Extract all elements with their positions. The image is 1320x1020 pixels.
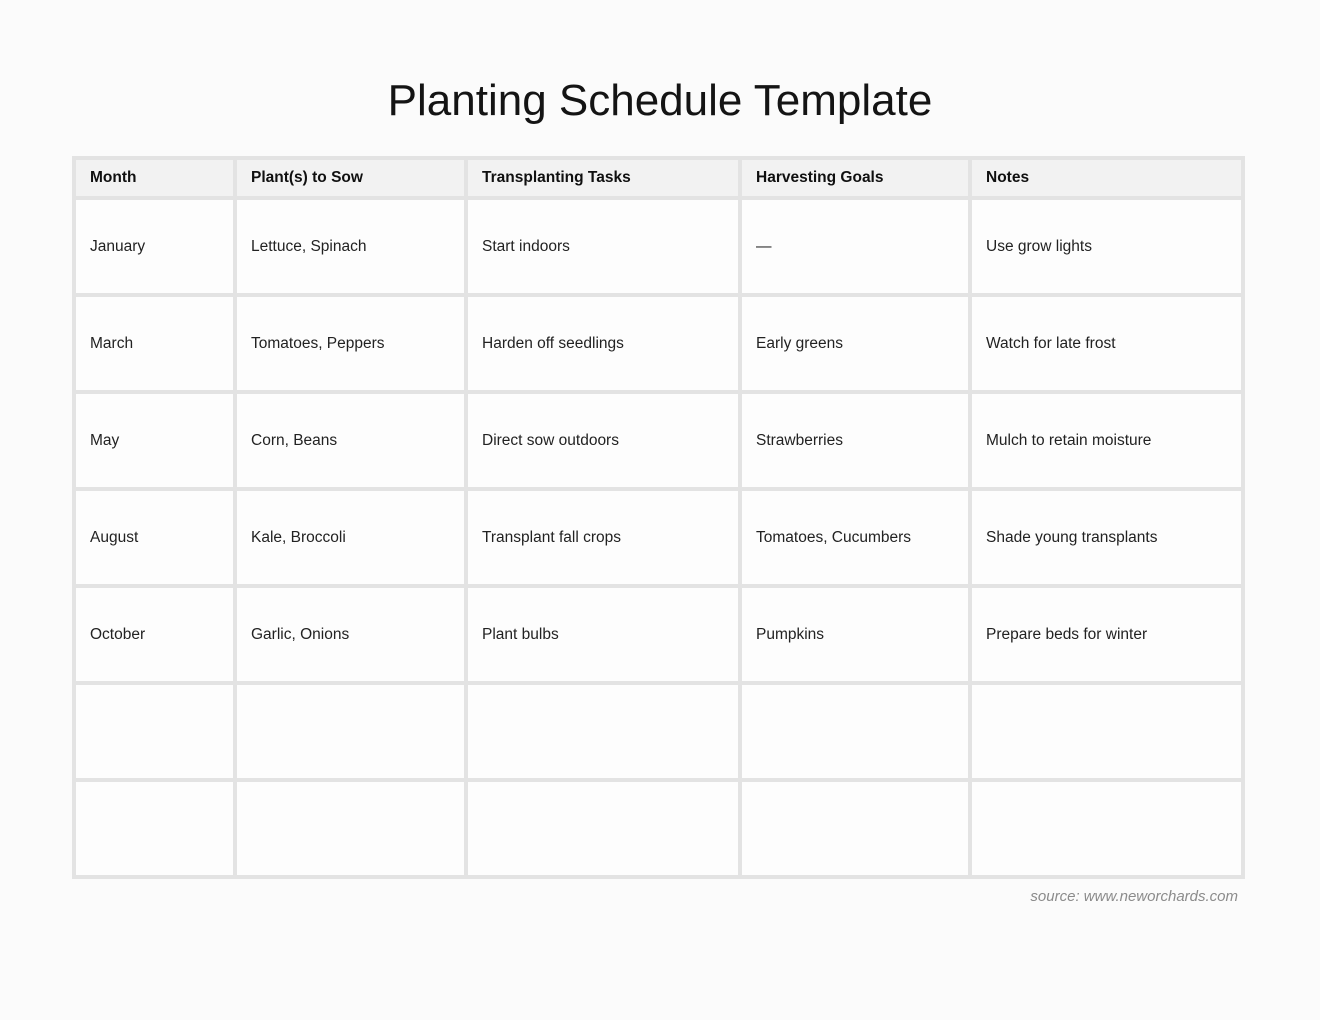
table-cell <box>237 685 464 778</box>
table-cell: Strawberries <box>742 394 968 487</box>
table-cell <box>76 685 233 778</box>
table-body: JanuaryLettuce, SpinachStart indoors—Use… <box>76 200 1241 875</box>
table-cell <box>76 782 233 875</box>
table-cell: Plant bulbs <box>468 588 738 681</box>
table-cell: Start indoors <box>468 200 738 293</box>
table-row: OctoberGarlic, OnionsPlant bulbsPumpkins… <box>76 588 1241 681</box>
table-cell: Early greens <box>742 297 968 390</box>
table-row <box>76 685 1241 778</box>
table-cell: August <box>76 491 233 584</box>
table-cell: Tomatoes, Peppers <box>237 297 464 390</box>
page-title: Planting Schedule Template <box>0 0 1320 126</box>
table-row: JanuaryLettuce, SpinachStart indoors—Use… <box>76 200 1241 293</box>
table-row: MayCorn, BeansDirect sow outdoorsStrawbe… <box>76 394 1241 487</box>
planting-schedule-table: Month Plant(s) to Sow Transplanting Task… <box>72 156 1245 879</box>
table-cell: Transplant fall crops <box>468 491 738 584</box>
source-attribution: source: www.neworchards.com <box>72 888 1245 905</box>
table-cell <box>468 685 738 778</box>
table-row <box>76 782 1241 875</box>
column-header-transplanting-tasks: Transplanting Tasks <box>468 160 738 196</box>
document-page: Planting Schedule Template Month Plant(s… <box>0 0 1320 1020</box>
table-cell <box>742 782 968 875</box>
table-cell: Prepare beds for winter <box>972 588 1241 681</box>
table-cell: Garlic, Onions <box>237 588 464 681</box>
table-cell: Tomatoes, Cucumbers <box>742 491 968 584</box>
table-cell: October <box>76 588 233 681</box>
table-cell: March <box>76 297 233 390</box>
table-cell: Corn, Beans <box>237 394 464 487</box>
header-row: Month Plant(s) to Sow Transplanting Task… <box>76 160 1241 196</box>
table-cell: Shade young transplants <box>972 491 1241 584</box>
table-cell: — <box>742 200 968 293</box>
table-cell: Harden off seedlings <box>468 297 738 390</box>
column-header-notes: Notes <box>972 160 1241 196</box>
table-cell <box>468 782 738 875</box>
table-cell: January <box>76 200 233 293</box>
table-cell: Lettuce, Spinach <box>237 200 464 293</box>
table-cell: Mulch to retain moisture <box>972 394 1241 487</box>
table-cell: May <box>76 394 233 487</box>
table-cell: Kale, Broccoli <box>237 491 464 584</box>
table-cell: Watch for late frost <box>972 297 1241 390</box>
table-cell: Pumpkins <box>742 588 968 681</box>
table-row: MarchTomatoes, PeppersHarden off seedlin… <box>76 297 1241 390</box>
table-cell: Use grow lights <box>972 200 1241 293</box>
column-header-plants-to-sow: Plant(s) to Sow <box>237 160 464 196</box>
column-header-harvesting-goals: Harvesting Goals <box>742 160 968 196</box>
table-cell <box>972 782 1241 875</box>
table-cell <box>742 685 968 778</box>
table-cell: Direct sow outdoors <box>468 394 738 487</box>
column-header-month: Month <box>76 160 233 196</box>
table-row: AugustKale, BroccoliTransplant fall crop… <box>76 491 1241 584</box>
table-cell <box>237 782 464 875</box>
table-cell <box>972 685 1241 778</box>
